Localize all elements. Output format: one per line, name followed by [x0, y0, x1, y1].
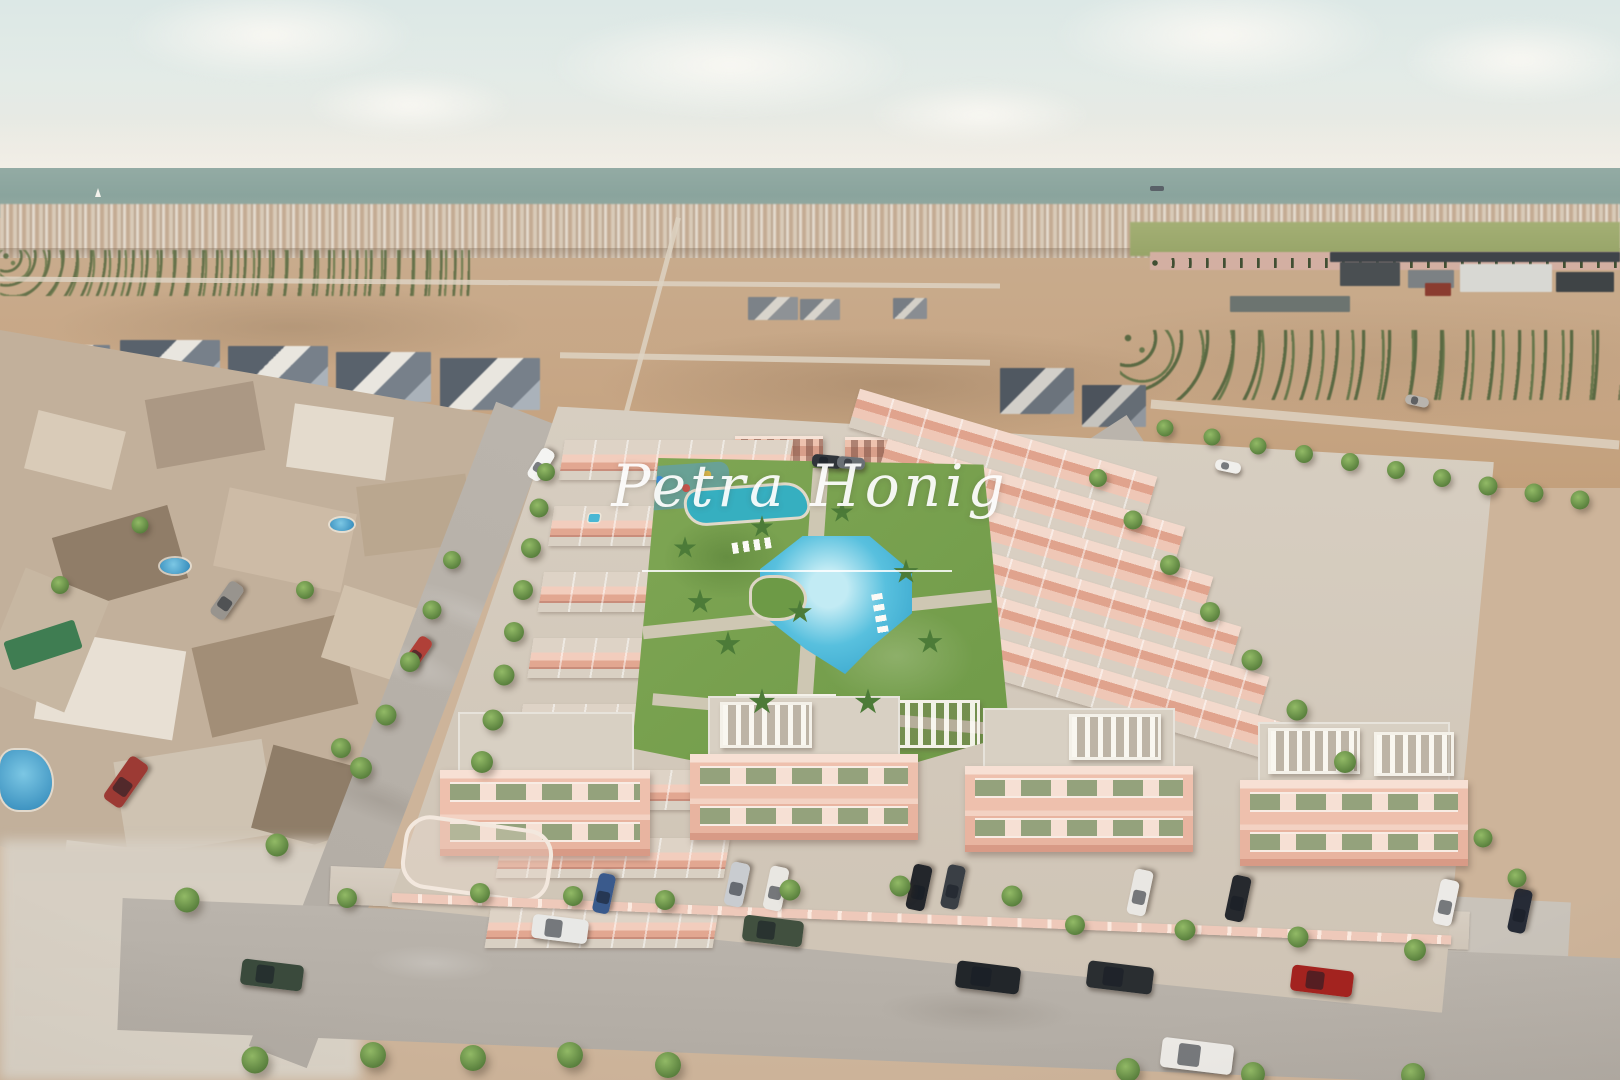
palm-tree	[893, 559, 919, 585]
tree	[1157, 420, 1174, 437]
tree	[1200, 602, 1220, 622]
palm-tree	[854, 688, 881, 715]
tree	[1334, 751, 1356, 773]
palm-tree	[748, 688, 775, 715]
tree	[780, 880, 801, 901]
tree	[1401, 1063, 1425, 1080]
tree	[360, 1042, 386, 1068]
tree	[563, 886, 583, 906]
palm-tree	[715, 631, 741, 657]
tree	[1065, 915, 1085, 935]
tree	[471, 751, 493, 773]
tree	[423, 601, 442, 620]
tree	[1175, 920, 1196, 941]
tree	[331, 738, 351, 758]
tree	[266, 834, 289, 857]
tree	[470, 883, 490, 903]
tree	[1204, 429, 1221, 446]
tree	[513, 580, 533, 600]
tree	[1002, 886, 1023, 907]
tree	[400, 652, 420, 672]
tree	[521, 538, 541, 558]
tree	[51, 576, 69, 594]
tree	[1160, 555, 1180, 575]
tree	[350, 757, 372, 779]
tree	[1404, 939, 1426, 961]
tree	[504, 622, 524, 642]
palm-tree	[687, 589, 713, 615]
tree	[296, 581, 314, 599]
tree	[443, 551, 461, 569]
tree	[655, 1052, 681, 1078]
tree	[1287, 700, 1308, 721]
tree	[242, 1047, 269, 1074]
tree	[1116, 1058, 1140, 1080]
watermark-text: Petra Honig	[0, 452, 1620, 520]
tree	[1241, 1062, 1265, 1080]
tree	[1508, 869, 1527, 888]
palm-tree	[917, 629, 943, 655]
tree	[494, 665, 515, 686]
tree	[1474, 829, 1493, 848]
palm-tree	[788, 600, 813, 625]
tree	[483, 710, 504, 731]
tree	[1242, 650, 1263, 671]
aerial-render-scene: Petra Honig	[0, 0, 1620, 1080]
tree	[557, 1042, 583, 1068]
trees-layer	[0, 0, 1620, 1080]
tree	[655, 890, 675, 910]
tree	[337, 888, 357, 908]
tree	[376, 705, 397, 726]
tree	[460, 1045, 486, 1071]
tree	[890, 876, 911, 897]
palm-tree	[673, 536, 696, 559]
tree	[175, 888, 200, 913]
watermark-underline	[642, 570, 952, 572]
tree	[1288, 927, 1309, 948]
